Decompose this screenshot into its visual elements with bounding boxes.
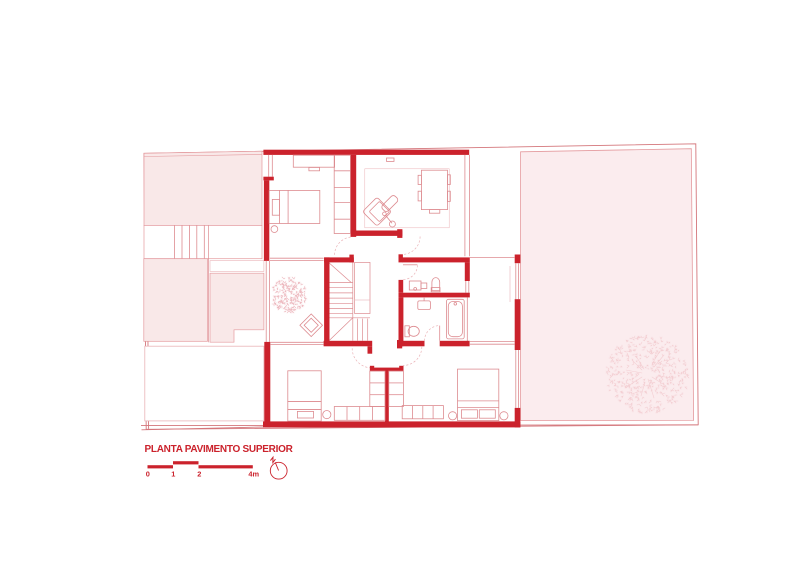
svg-text:0: 0 bbox=[146, 470, 150, 479]
svg-text:2: 2 bbox=[197, 470, 201, 479]
svg-text:4m: 4m bbox=[248, 470, 259, 479]
svg-text:PLANTA PAVIMENTO SUPERIOR: PLANTA PAVIMENTO SUPERIOR bbox=[145, 444, 294, 455]
svg-text:1: 1 bbox=[171, 470, 175, 479]
